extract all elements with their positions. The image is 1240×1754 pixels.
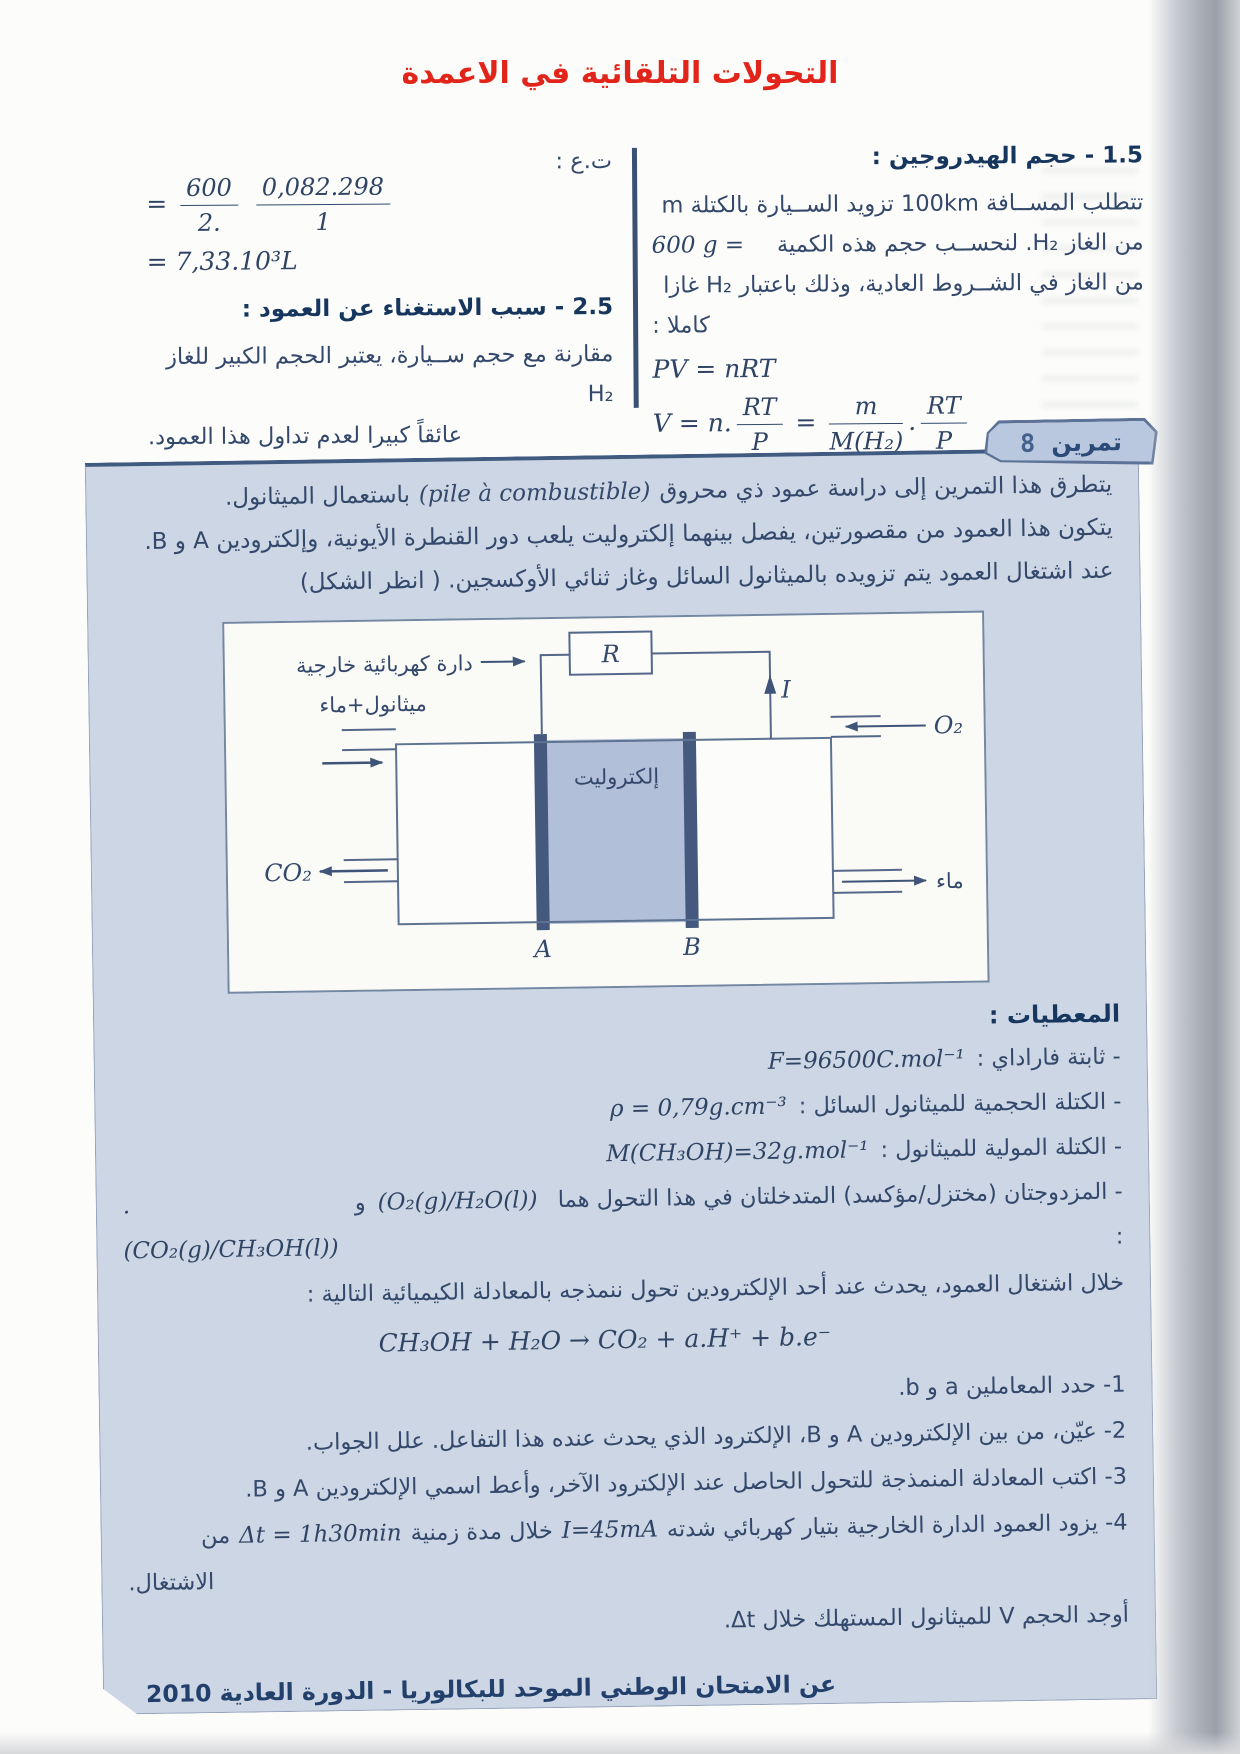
section-2-5-heading: 2.5 - سبب الاستغناء عن العمود : bbox=[147, 290, 613, 327]
question-fragment: خلال مدة زمنية bbox=[410, 1508, 553, 1556]
paragraph-line: من الغاز H₂. لنحســب حجم هذه الكمية 600 … bbox=[651, 222, 1143, 265]
electrolyte-label: إلكتروليت bbox=[574, 764, 660, 790]
outlet-pipe bbox=[344, 859, 398, 860]
denominator: P bbox=[737, 425, 783, 457]
inlet-pipe bbox=[342, 749, 396, 750]
paragraph-line: كاملا : bbox=[652, 302, 1144, 345]
data-label: - الكتلة الحجمية للميثانول السائل : bbox=[798, 1080, 1121, 1130]
page-bottom-shadow bbox=[0, 1732, 1240, 1754]
inlet-pipe bbox=[831, 736, 881, 737]
water-outlet-arrow-icon bbox=[842, 880, 926, 881]
page-edge-shadow bbox=[1148, 0, 1240, 1754]
solution-column-left: ت.ع : = 6002. 0,082.2981 = 7,33.10³L 2.5… bbox=[146, 142, 614, 467]
redox-couple-1: (O₂(g)/H₂O(l)) bbox=[377, 1178, 538, 1225]
methanol-water-label: ميثانول+ماء bbox=[319, 692, 427, 718]
current-value: I=45mA bbox=[561, 1507, 658, 1554]
fraction: RTP bbox=[921, 391, 967, 456]
exercise-badge-inner: تمرين 8 bbox=[987, 421, 1156, 465]
numerator: RT bbox=[921, 391, 967, 424]
co2-label: CO₂ bbox=[264, 859, 312, 888]
equation-numeric: = 6002. 0,082.2981 bbox=[146, 170, 612, 238]
external-circuit-arrow-icon bbox=[481, 661, 525, 662]
figure-wrap: R I دارة كهربائية خارجية ميثانول+ماء bbox=[114, 609, 1119, 996]
external-circuit-label: دارة كهربائية خارجية bbox=[296, 651, 473, 678]
paragraph-line: من الغاز في الشــروط العادية، وذلك باعتب… bbox=[652, 262, 1144, 305]
data-label: - المزدوجتان (مختزل/مؤكسد) المتدخلتان في… bbox=[549, 1170, 1124, 1268]
intro-fragment: يتطرق هذا التمرين إلى دراسة عمود ذي محرو… bbox=[659, 464, 1112, 514]
data-line-redox-couples: - المزدوجتان (مختزل/مؤكسد) المتدخلتان في… bbox=[122, 1170, 1123, 1275]
half-reaction-equation: CH₃OH + H₂O → CO₂ + a.H⁺ + b.e⁻ bbox=[125, 1312, 1086, 1368]
mass-value: 600 g = bbox=[651, 225, 744, 266]
equation-result: = 7,33.10³L bbox=[147, 243, 613, 278]
redox-couple-2: .(CO₂(g)/CH₃OH(l)) bbox=[122, 1181, 343, 1274]
fraction: mM(H₂) bbox=[829, 391, 903, 457]
fraction: 6002. bbox=[180, 173, 238, 238]
equation-term: V = n. bbox=[653, 408, 732, 438]
question-fragment: من bbox=[201, 1513, 231, 1559]
left-compartment bbox=[396, 742, 539, 924]
faraday-value: F=96500C.mol⁻¹ bbox=[768, 1037, 966, 1085]
fuel-cell-diagram: R I دارة كهربائية خارجية ميثانول+ماء bbox=[222, 611, 989, 994]
numerator: 600 bbox=[180, 173, 238, 206]
conjunction: و bbox=[354, 1181, 366, 1226]
data-label: - الكتلة المولية للميثانول : bbox=[880, 1125, 1122, 1174]
equation-ideal-gas: PV = nRT bbox=[652, 350, 1144, 385]
fuel-cell-figure: R I دارة كهربائية خارجية ميثانول+ماء bbox=[222, 611, 989, 994]
equation-term: = bbox=[146, 189, 167, 218]
molar-mass-value: M(CH₃OH)=32g.mol⁻¹ bbox=[606, 1128, 869, 1177]
section-1-5-heading: 1.5 - حجم الهيدروجين : bbox=[651, 138, 1143, 175]
oxygen-label: O₂ bbox=[934, 711, 964, 739]
current-label: I bbox=[780, 675, 791, 703]
duration-value: Δt = 1h30min bbox=[239, 1510, 402, 1558]
denominator: 2. bbox=[180, 206, 238, 238]
exercise-badge-label: تمرين bbox=[1051, 428, 1122, 457]
exercise-panel: يتطرق هذا التمرين إلى دراسة عمود ذي محرو… bbox=[85, 447, 1157, 1714]
solution-section: 1.5 - حجم الهيدروجين : تتطلب المســافة 1… bbox=[77, 138, 1145, 468]
numerator: RT bbox=[737, 392, 783, 425]
data-label: - ثابتة فاراداي : bbox=[976, 1035, 1121, 1082]
water-label: ماء bbox=[936, 869, 964, 893]
resistor-label: R bbox=[600, 640, 619, 668]
paragraph-line: مقارنة مع حجم ســيارة، يعتبر الحجم الكبي… bbox=[147, 334, 614, 417]
numerator: 0,082.298 bbox=[256, 172, 390, 206]
equation-term: . bbox=[908, 407, 916, 436]
fraction: RTP bbox=[737, 392, 783, 457]
page-title: التحولات التلقائية في الاعمدة bbox=[0, 56, 1240, 91]
inlet-pipe bbox=[342, 729, 396, 730]
intro-fragment: باستعمال الميثانول. bbox=[225, 474, 411, 520]
question-fragment: 4- يزود العمود الدارة الخارجية بتيار كهر… bbox=[667, 1500, 1128, 1553]
exercise-number: 8 bbox=[1020, 429, 1036, 458]
outlet-pipe bbox=[344, 881, 398, 882]
density-value: ρ = 0,79g.cm⁻³ bbox=[610, 1085, 787, 1133]
inlet-pipe bbox=[831, 716, 881, 717]
exam-source-line: عن الامتحان الوطني الموحد للبكالوريا - ا… bbox=[130, 1662, 1130, 1713]
numerator: m bbox=[829, 391, 903, 425]
electrode-b-label: B bbox=[682, 933, 701, 961]
exercise-badge: تمرين 8 bbox=[984, 417, 1159, 467]
right-compartment bbox=[696, 738, 834, 920]
equation-term: = bbox=[795, 408, 816, 437]
fuel-cell-french-term: (pile à combustible) bbox=[419, 471, 651, 517]
denominator: 1 bbox=[256, 205, 390, 238]
paragraph-fragment: من الغاز H₂. لنحســب حجم هذه الكمية bbox=[777, 222, 1144, 265]
solution-column-right: 1.5 - حجم الهيدروجين : تتطلب المســافة 1… bbox=[651, 138, 1145, 464]
methanol-inlet-arrow-icon bbox=[322, 763, 382, 764]
fraction: 0,082.2981 bbox=[256, 172, 391, 238]
outlet-pipe bbox=[833, 892, 902, 893]
paragraph-line: عائقاً كبيرا لعدم تداول هذا العمود. bbox=[148, 414, 614, 457]
column-divider bbox=[632, 148, 639, 408]
outlet-pipe bbox=[833, 870, 902, 871]
electrode-a-label: A bbox=[532, 935, 552, 963]
oxygen-inlet-arrow-icon bbox=[846, 725, 926, 726]
co2-outlet-arrow-icon bbox=[320, 870, 388, 871]
paragraph-line: تتطلب المســافة 100km تزويد الســيارة با… bbox=[651, 182, 1143, 225]
